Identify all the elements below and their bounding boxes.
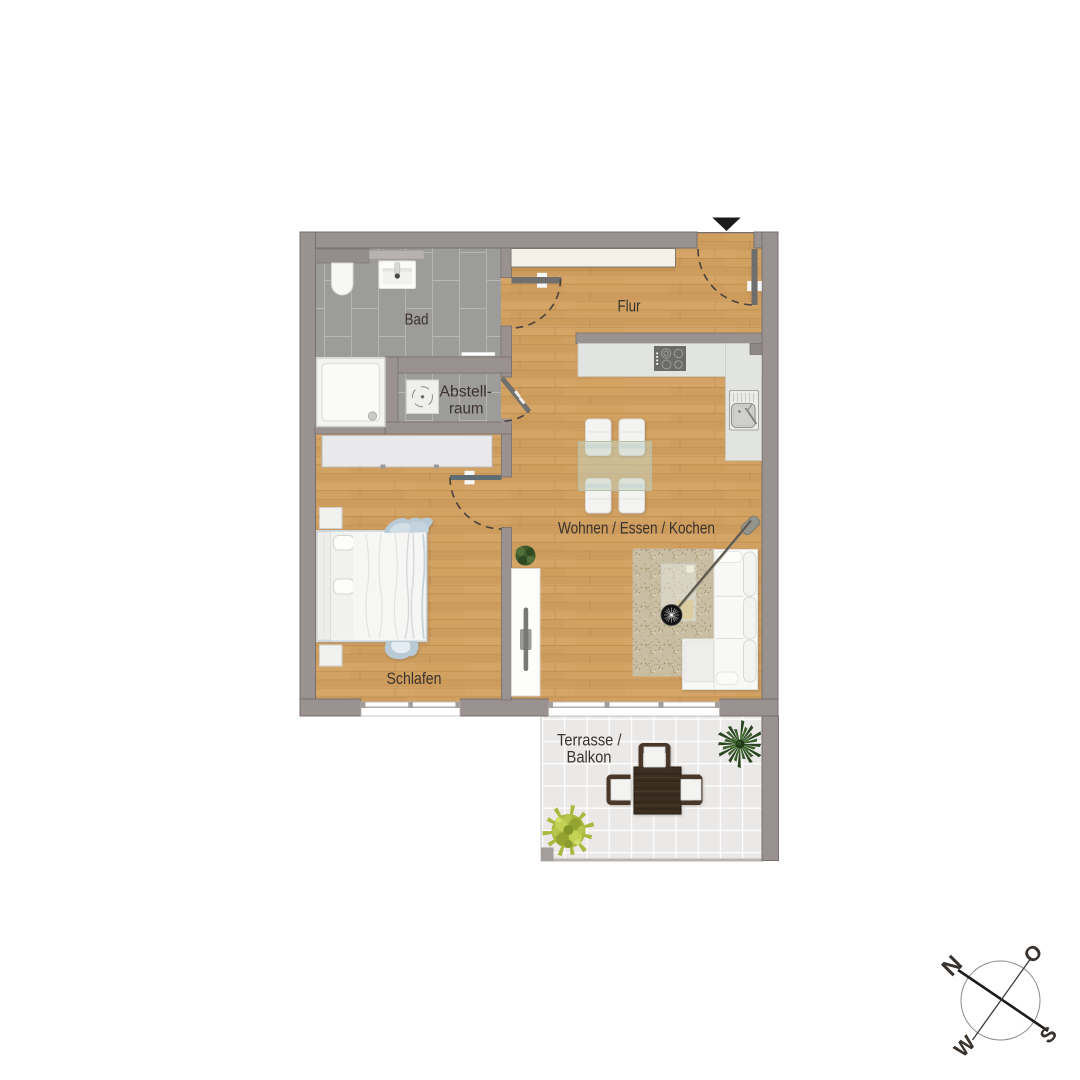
svg-text:Flur: Flur xyxy=(618,297,641,316)
svg-text:Bad: Bad xyxy=(405,312,429,329)
svg-text:Balkon: Balkon xyxy=(567,748,612,767)
svg-text:Abstell-: Abstell- xyxy=(440,384,493,401)
svg-text:O: O xyxy=(1019,940,1047,968)
svg-text:Wohnen / Essen / Kochen: Wohnen / Essen / Kochen xyxy=(558,519,715,538)
svg-text:Schlafen: Schlafen xyxy=(387,669,442,688)
svg-text:N: N xyxy=(937,950,968,981)
svg-text:raum: raum xyxy=(449,401,484,418)
